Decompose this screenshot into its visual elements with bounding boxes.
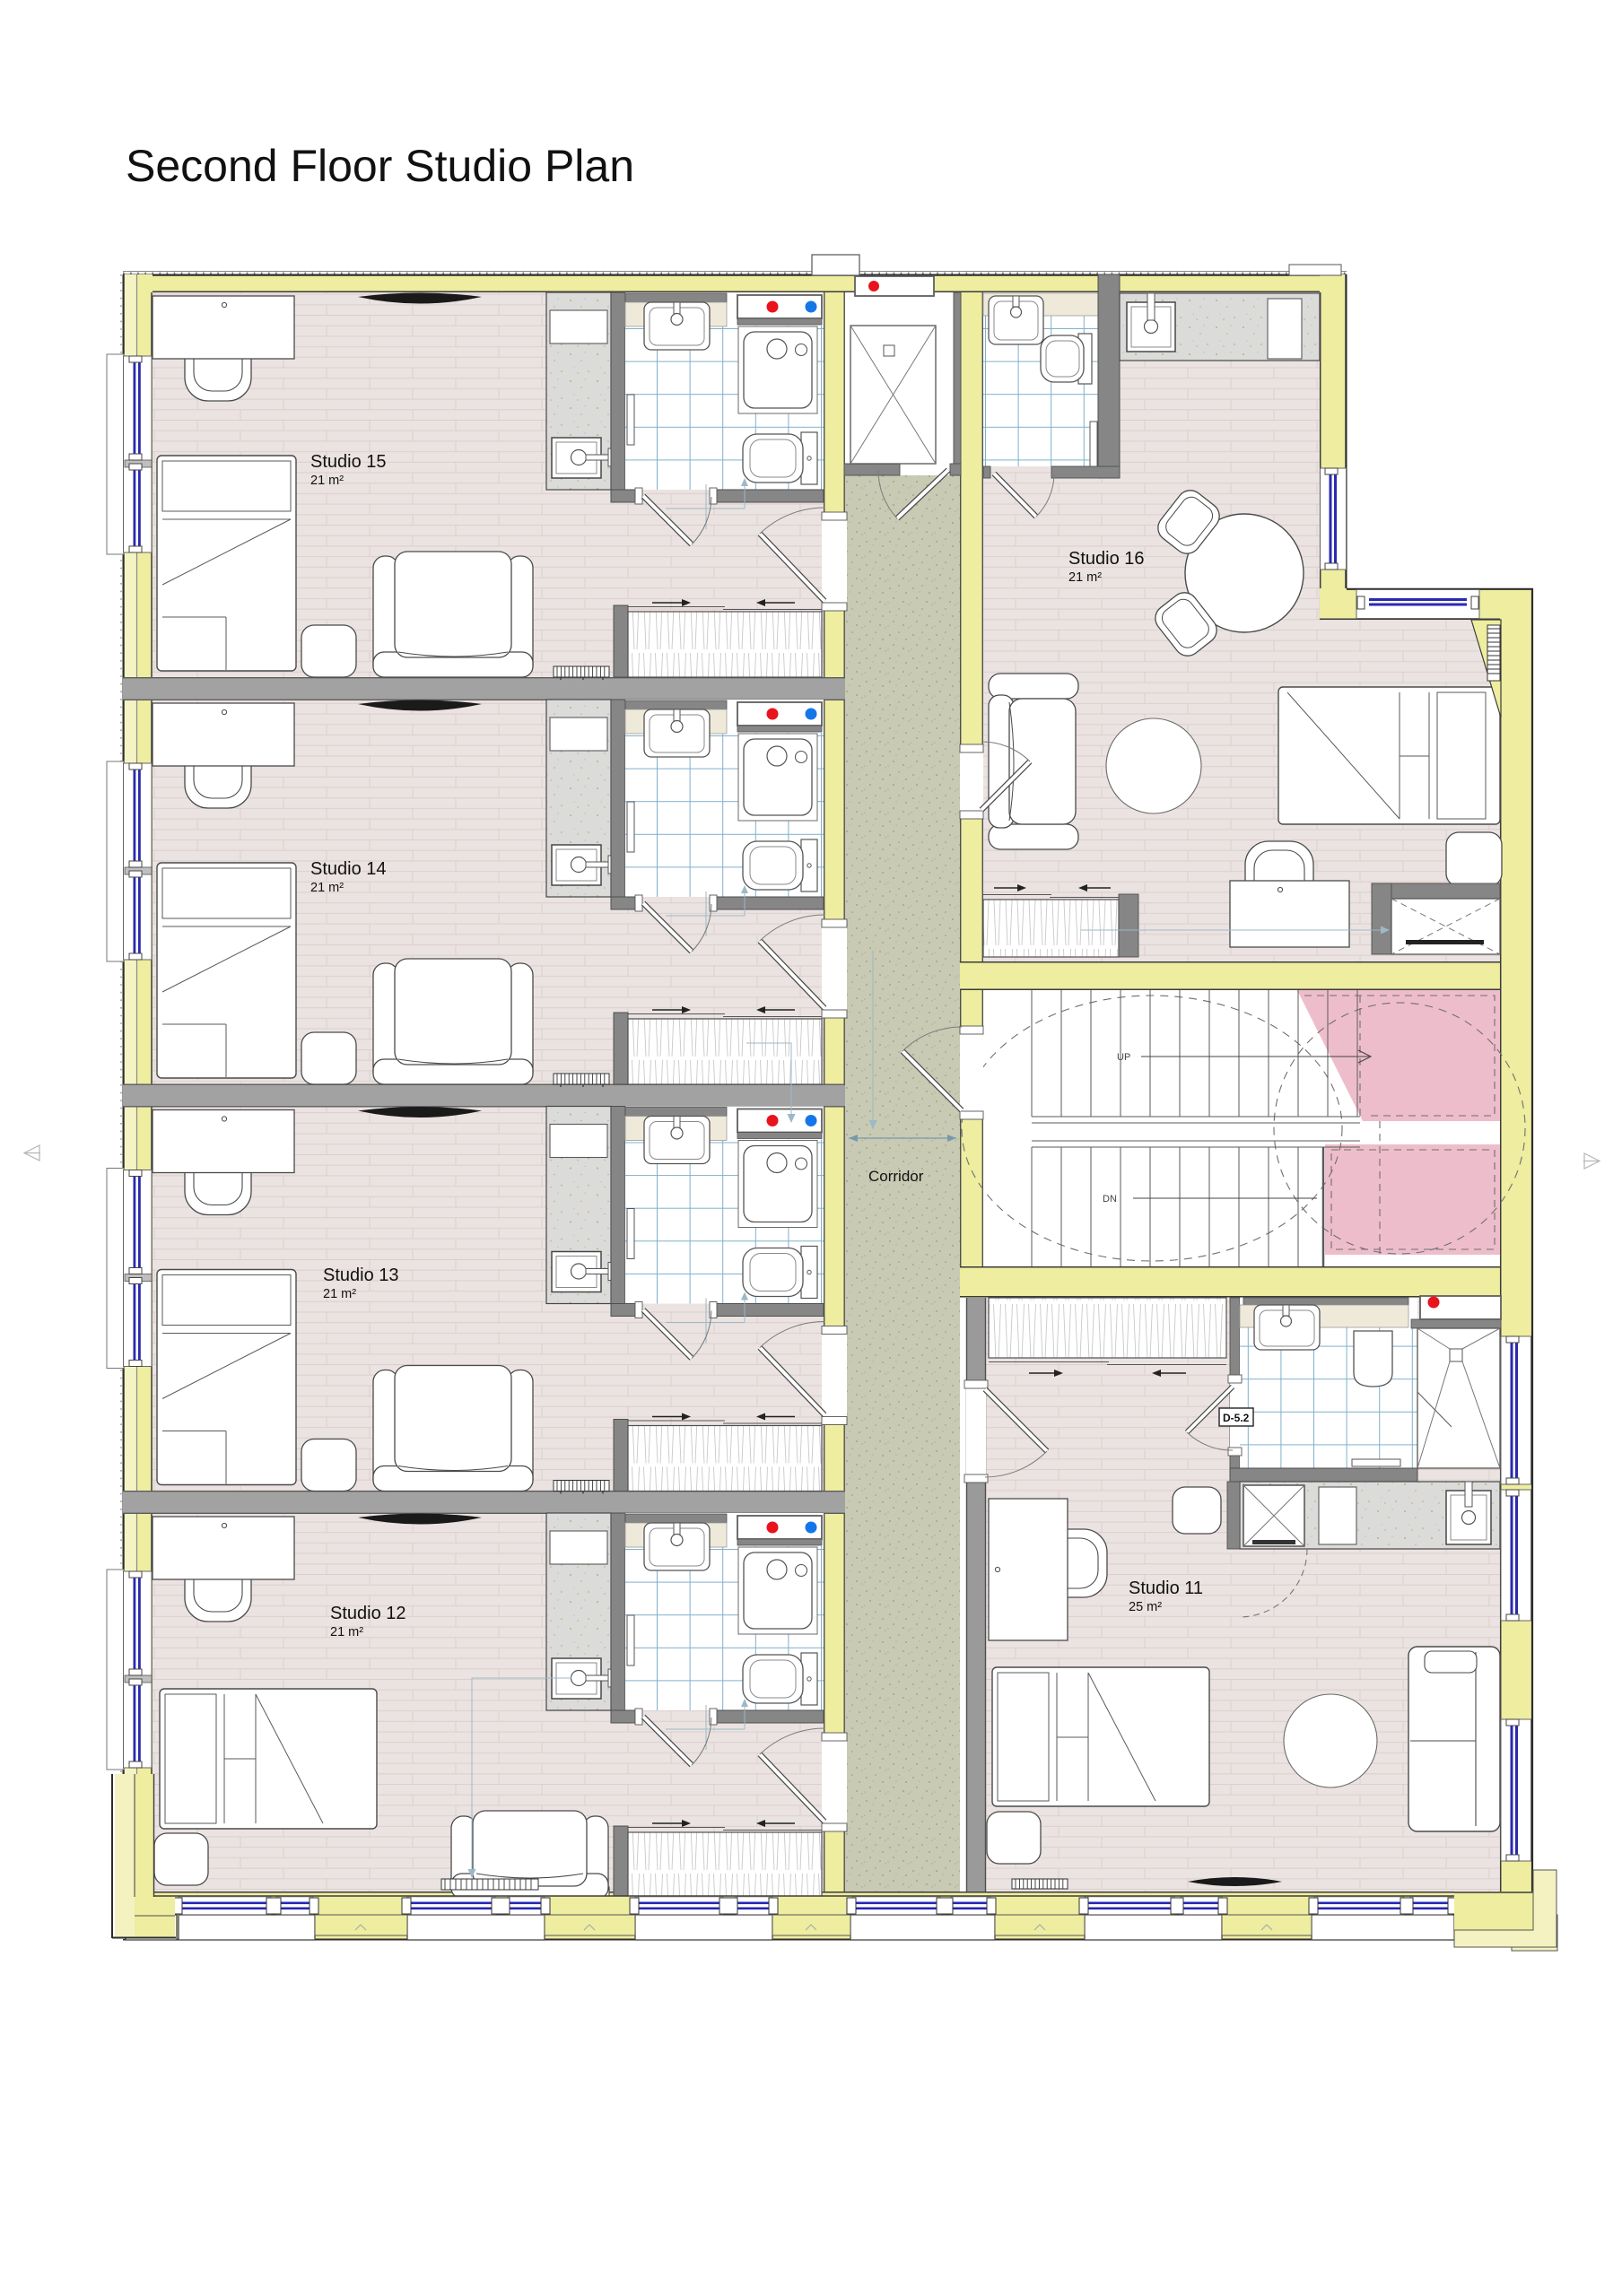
svg-text:21 m²: 21 m² (310, 881, 344, 895)
svg-text:Studio 12: Studio 12 (330, 1604, 406, 1623)
svg-text:21 m²: 21 m² (1068, 570, 1102, 585)
svg-text:Studio 13: Studio 13 (323, 1265, 399, 1285)
svg-text:Studio 15: Studio 15 (310, 452, 387, 472)
svg-text:21 m²: 21 m² (323, 1287, 356, 1301)
svg-text:25 m²: 25 m² (1129, 1600, 1162, 1614)
svg-text:Studio 16: Studio 16 (1068, 549, 1145, 569)
svg-text:Second Floor Studio Plan: Second Floor Studio Plan (126, 141, 634, 191)
svg-text:D-5.2: D-5.2 (1223, 1412, 1250, 1424)
svg-text:DN: DN (1103, 1194, 1117, 1205)
svg-text:Studio 11: Studio 11 (1129, 1578, 1203, 1598)
svg-text:Corridor: Corridor (868, 1168, 924, 1185)
svg-text:UP: UP (1117, 1052, 1130, 1063)
svg-text:21 m²: 21 m² (310, 474, 344, 488)
svg-text:Studio 14: Studio 14 (310, 859, 387, 879)
svg-text:21 m²: 21 m² (330, 1625, 363, 1639)
